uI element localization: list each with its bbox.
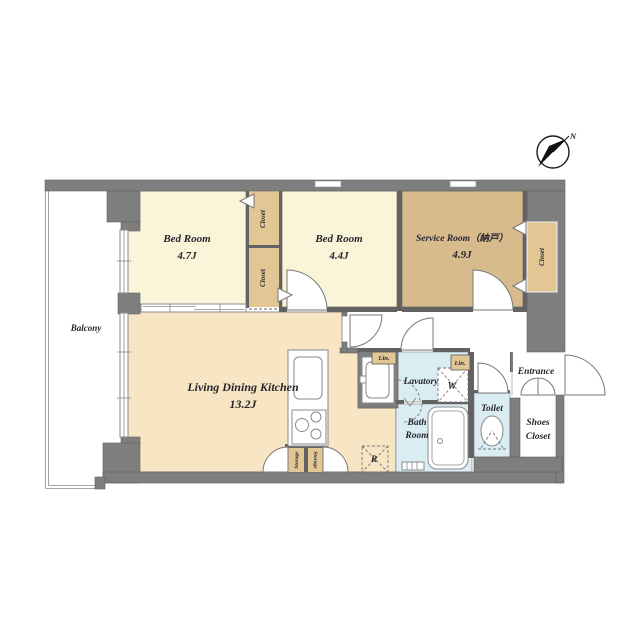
ldk-size: 13.2J <box>230 397 258 411</box>
lavatory-label: Lavatory <box>403 377 440 387</box>
shoes-closet-label-1: Shoes <box>526 418 550 428</box>
floorplan-drawing: Balcony Bed Room 4.7J Bed Room 4.4J Serv… <box>0 0 640 640</box>
storage-left-label: Storage <box>294 451 300 469</box>
balcony-label: Balcony <box>70 323 103 333</box>
vanity-sink <box>366 362 389 398</box>
bedroom2-label: Bed Room <box>314 233 363 245</box>
bedroom1-size: 4.7J <box>176 250 197 262</box>
closet-a-label: Closet <box>259 209 267 228</box>
bedroom1-floor <box>128 191 246 305</box>
vanity-tap <box>360 376 366 383</box>
bath-drain-grille <box>402 462 424 470</box>
bedroom1-label: Bed Room <box>162 233 211 245</box>
bedroom2-size: 4.4J <box>328 250 349 262</box>
shoes-closet-floor <box>520 402 556 455</box>
closet-c-label: Closet <box>538 247 546 266</box>
bath-label-1: Bath <box>406 418 426 428</box>
compass-n-label: N <box>569 131 577 141</box>
entrance-label: Entrance <box>517 367 555 377</box>
service-room-label: Service Room（納戸） <box>416 232 508 244</box>
closet-b-label: Closet <box>259 268 267 287</box>
bathtub <box>428 407 468 469</box>
kitchen-counter <box>288 350 328 446</box>
bedroom1-sliding-door <box>141 304 246 312</box>
washer-mark: W <box>448 381 458 392</box>
linen-left-label: Lin. <box>377 355 389 362</box>
fridge-mark: R <box>370 455 377 465</box>
compass-icon <box>537 136 569 168</box>
shoes-closet-label-2: Closet <box>526 432 551 442</box>
linen-right-label: Lin. <box>453 360 465 367</box>
storage-right-label: Storage <box>312 451 318 469</box>
ldk-label: Living Dining Kitchen <box>186 380 299 394</box>
floorplan: Balcony Bed Room 4.7J Bed Room 4.4J Serv… <box>0 0 640 640</box>
bath-label-2: Room <box>404 431 428 441</box>
service-room-size: 4.9J <box>451 249 472 261</box>
toilet-label: Toilet <box>481 404 503 414</box>
